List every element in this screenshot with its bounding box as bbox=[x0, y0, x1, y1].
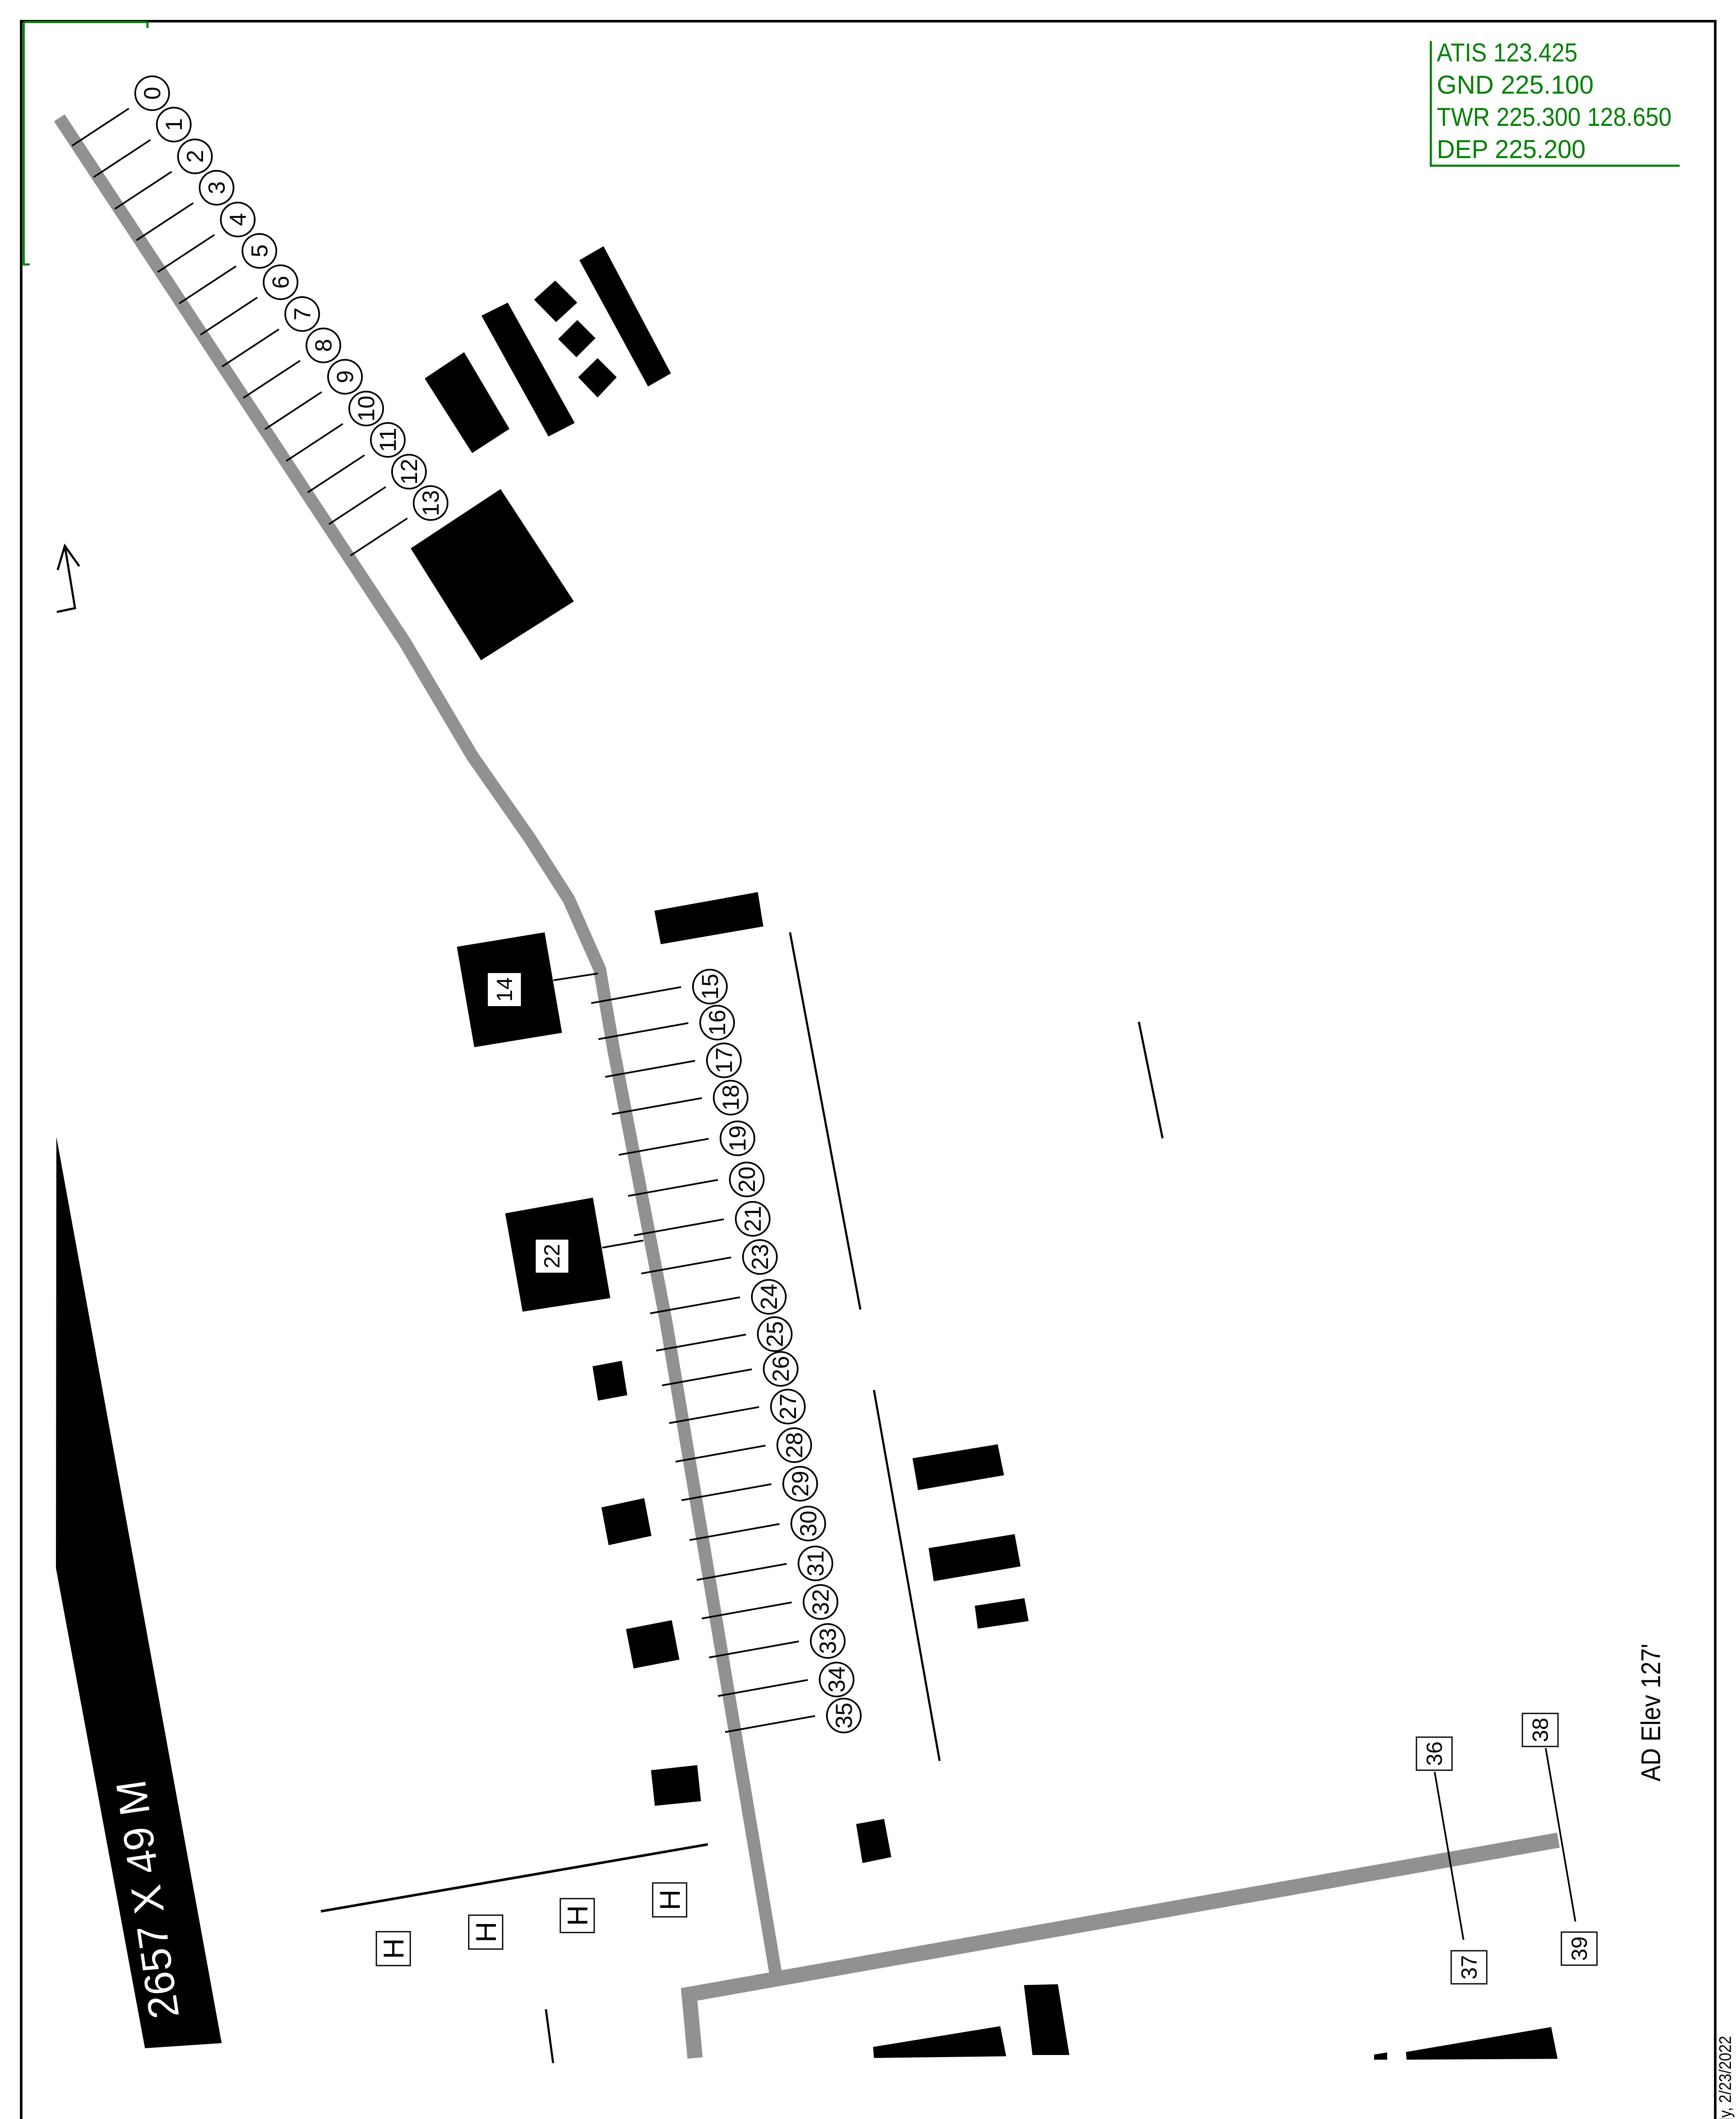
svg-text:AD Elev 127': AD Elev 127' bbox=[1636, 1644, 1666, 1782]
svg-text:24: 24 bbox=[756, 1284, 782, 1310]
svg-text:11: 11 bbox=[375, 428, 401, 452]
svg-text:2: 2 bbox=[182, 150, 208, 163]
svg-text:GND 225.100: GND 225.100 bbox=[1437, 70, 1594, 99]
svg-text:18: 18 bbox=[718, 1085, 744, 1110]
svg-text:3: 3 bbox=[203, 181, 230, 195]
svg-text:0: 0 bbox=[139, 87, 165, 100]
svg-text:14: 14 bbox=[492, 977, 517, 1002]
svg-text:23: 23 bbox=[747, 1244, 773, 1270]
svg-text:H: H bbox=[378, 1938, 410, 1959]
svg-text:27: 27 bbox=[775, 1393, 801, 1419]
svg-text:8: 8 bbox=[310, 339, 337, 352]
svg-text:6: 6 bbox=[267, 276, 294, 289]
svg-text:31: 31 bbox=[802, 1550, 829, 1576]
svg-text:DEP 225.200: DEP 225.200 bbox=[1437, 135, 1586, 164]
svg-text:H: H bbox=[562, 1905, 594, 1926]
svg-text:38: 38 bbox=[1528, 1718, 1553, 1742]
svg-text:10: 10 bbox=[353, 395, 379, 421]
svg-text:13: 13 bbox=[417, 490, 444, 516]
svg-text:1: 1 bbox=[161, 118, 187, 131]
svg-text:37: 37 bbox=[1457, 1955, 1482, 1980]
svg-text:26: 26 bbox=[768, 1356, 794, 1382]
svg-text:20: 20 bbox=[734, 1166, 760, 1192]
svg-text:32: 32 bbox=[807, 1589, 834, 1615]
svg-text:7: 7 bbox=[289, 308, 315, 321]
svg-text:29: 29 bbox=[787, 1471, 813, 1496]
svg-text:21: 21 bbox=[740, 1206, 766, 1232]
svg-text:28: 28 bbox=[781, 1432, 807, 1458]
svg-text:4: 4 bbox=[225, 213, 251, 226]
svg-text:36: 36 bbox=[1422, 1741, 1447, 1766]
svg-text:15: 15 bbox=[697, 973, 723, 999]
svg-text:H: H bbox=[654, 1889, 686, 1910]
svg-text:33: 33 bbox=[815, 1628, 841, 1654]
svg-text:TWR 225.300 128.650: TWR 225.300 128.650 bbox=[1437, 103, 1672, 131]
svg-text:5: 5 bbox=[246, 245, 273, 258]
svg-text:H: H bbox=[470, 1922, 502, 1942]
svg-text:39: 39 bbox=[1567, 1936, 1592, 1961]
svg-text:22: 22 bbox=[540, 1244, 565, 1268]
svg-text:17: 17 bbox=[711, 1047, 737, 1073]
svg-text:ATIS 123.425: ATIS 123.425 bbox=[1437, 38, 1577, 67]
svg-text:For BMS use only, 2/23/2022: For BMS use only, 2/23/2022 bbox=[1716, 2036, 1735, 2119]
svg-text:16: 16 bbox=[704, 1009, 730, 1035]
svg-text:12: 12 bbox=[396, 459, 422, 484]
svg-text:9: 9 bbox=[332, 370, 358, 384]
svg-text:25: 25 bbox=[762, 1321, 788, 1347]
svg-text:19: 19 bbox=[724, 1125, 751, 1151]
svg-text:34: 34 bbox=[823, 1666, 850, 1692]
svg-text:30: 30 bbox=[795, 1510, 821, 1536]
svg-text:35: 35 bbox=[831, 1702, 857, 1728]
